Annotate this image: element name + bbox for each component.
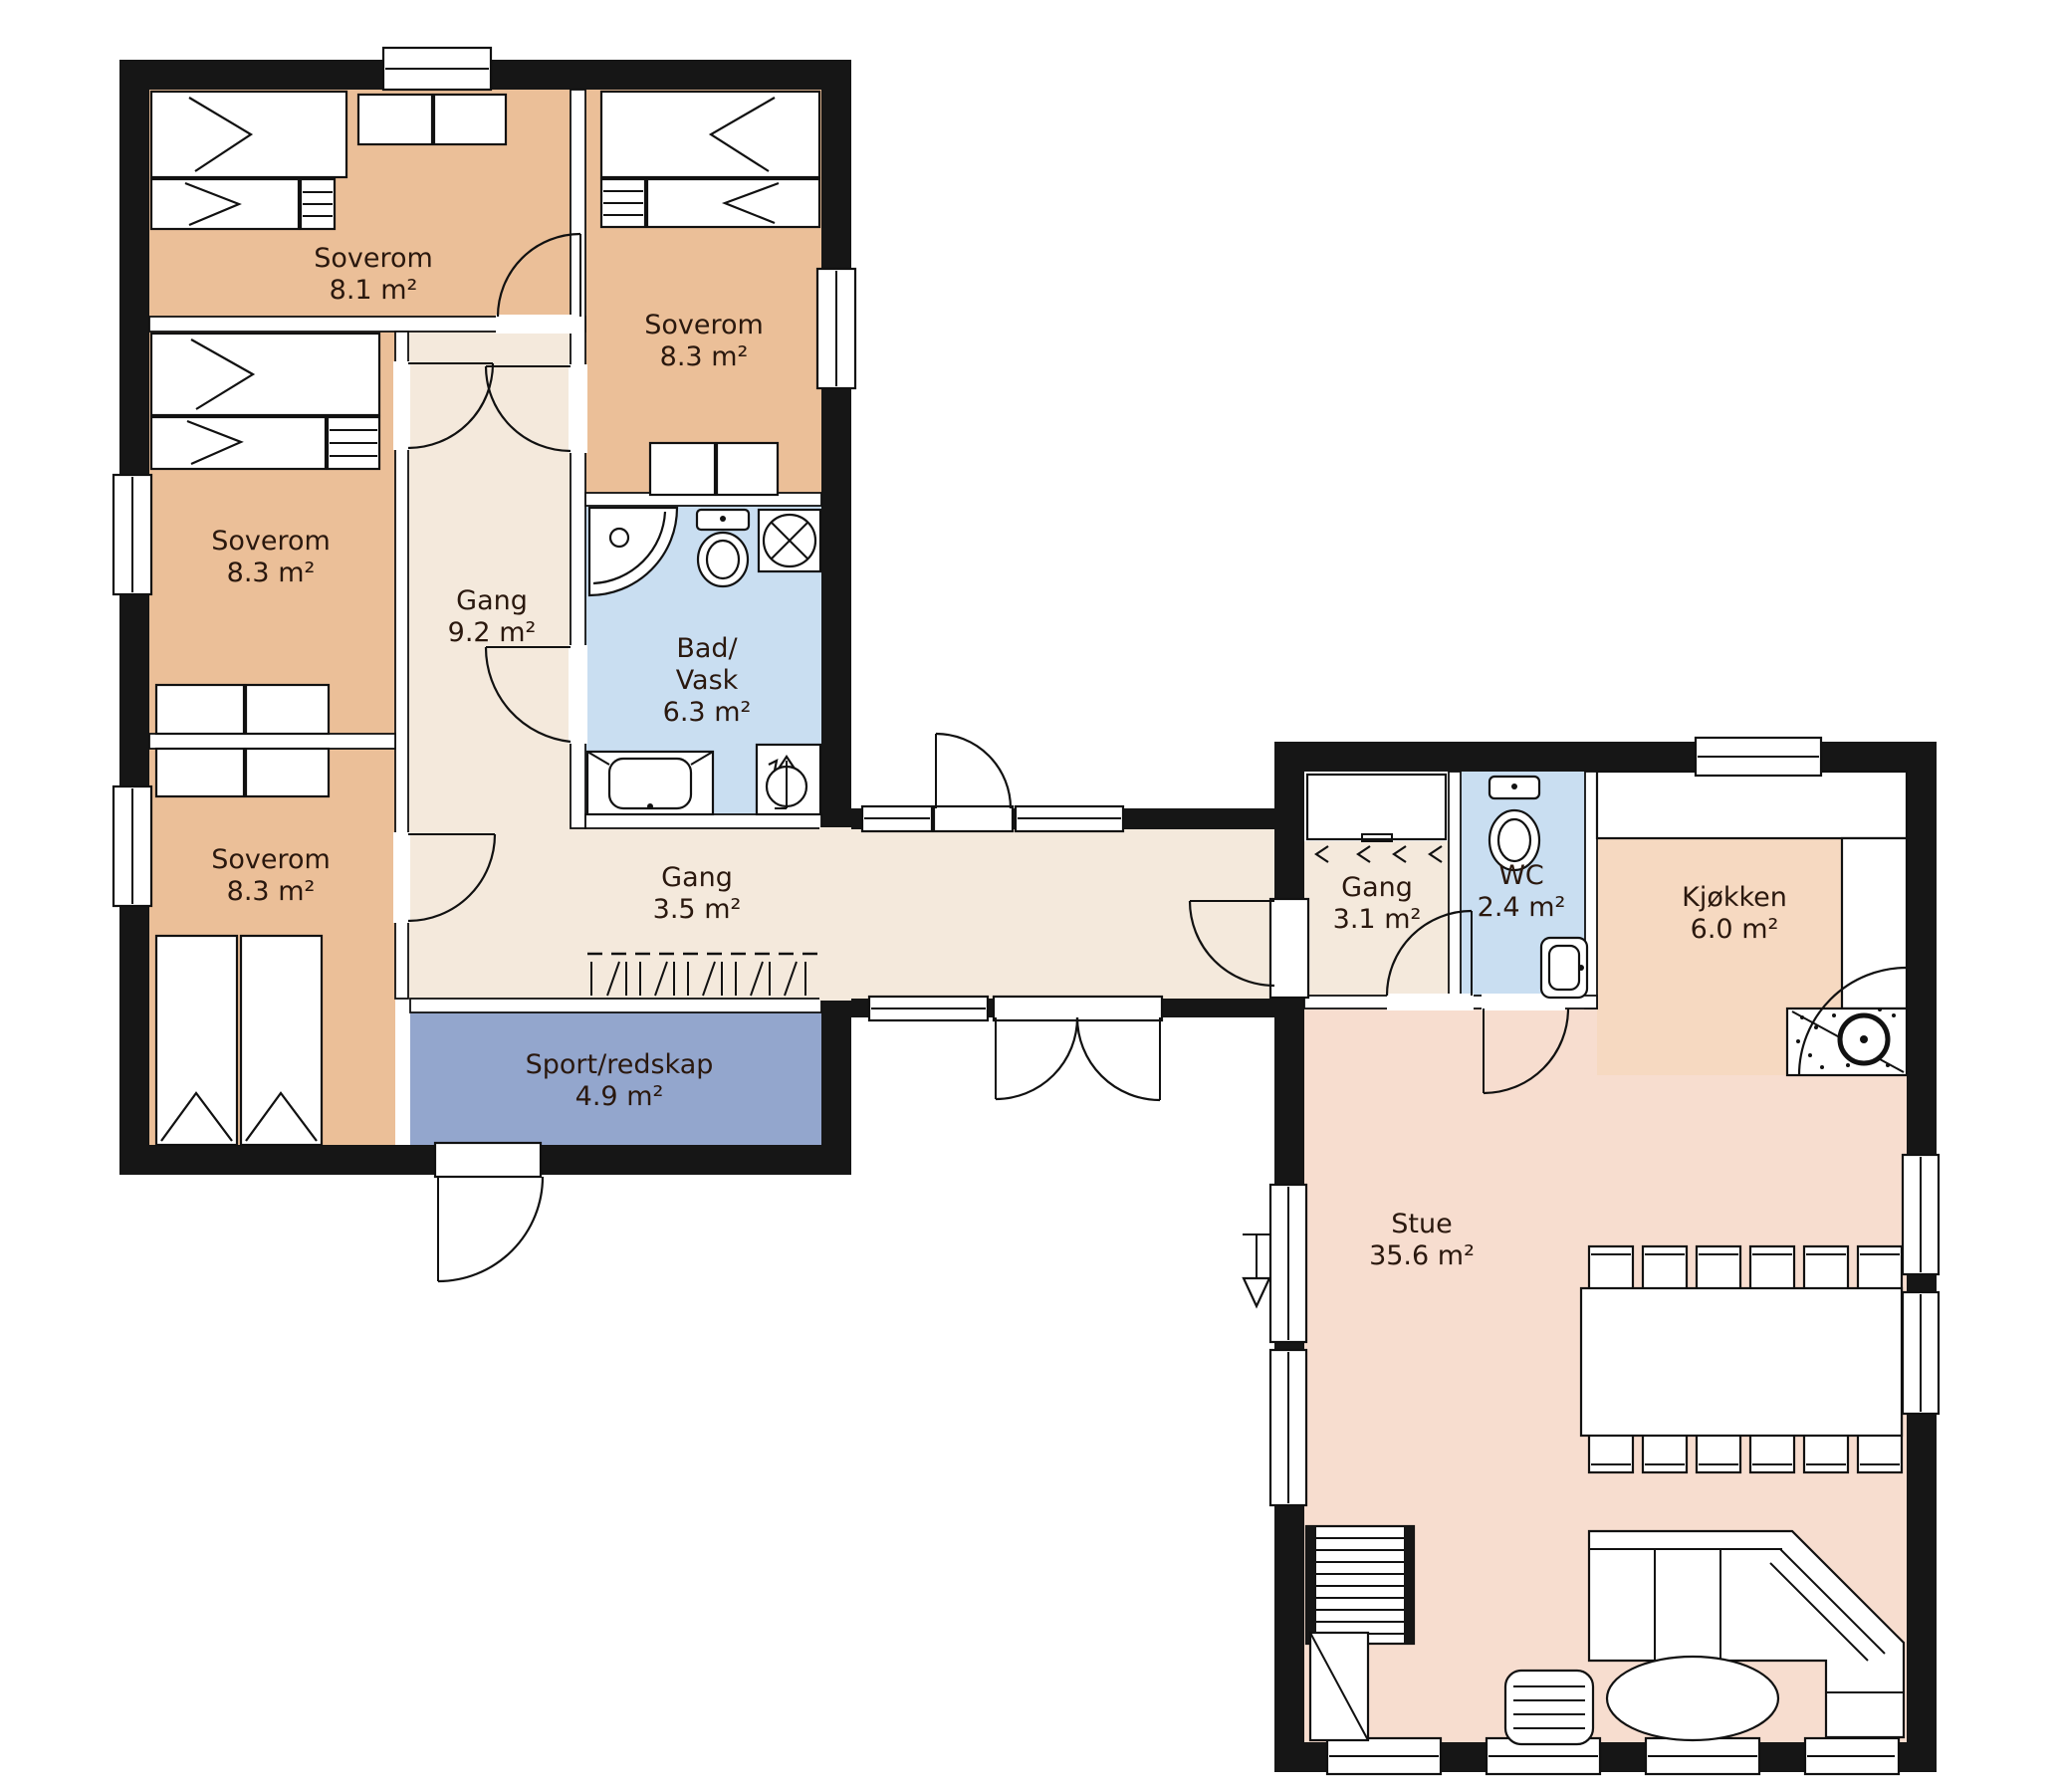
left-building: Soverom 8.1 m² Soverom 8.3 m² Soverom 8.…	[114, 48, 855, 1281]
toilet-icon	[697, 510, 749, 586]
room-label: Sport/redskap	[526, 1049, 714, 1080]
floor-plan-page: Soverom 8.1 m² Soverom 8.3 m² Soverom 8.…	[0, 0, 2061, 1792]
room-label: Vask	[676, 665, 739, 696]
window	[862, 806, 932, 831]
door-opening	[569, 364, 587, 453]
floor-plan-drawing: Soverom 8.1 m² Soverom 8.3 m² Soverom 8.…	[0, 0, 2061, 1792]
door-opening	[496, 315, 582, 334]
bunk-bed	[151, 92, 346, 229]
room-label: Stue	[1391, 1209, 1452, 1239]
window	[1646, 1738, 1759, 1774]
door-opening	[393, 361, 410, 450]
room-label: Soverom	[314, 243, 433, 274]
room-label: Soverom	[211, 844, 331, 875]
room-area: 6.3 m²	[663, 697, 752, 728]
room-floor-gang	[408, 332, 571, 999]
room-label: Kjøkken	[1682, 882, 1787, 913]
wardrobe	[156, 749, 329, 796]
window	[1696, 738, 1821, 776]
room-area: 3.1 m²	[1333, 904, 1422, 935]
bunk-bed	[601, 92, 819, 227]
room-area: 8.1 m²	[330, 275, 418, 306]
wardrobe	[156, 685, 329, 734]
armchair	[1505, 1671, 1593, 1744]
room-label: Soverom	[211, 526, 331, 557]
window	[1270, 1185, 1306, 1342]
room-label: Gang	[456, 585, 528, 616]
room-area: 2.4 m²	[1478, 892, 1566, 923]
coffee-table	[1607, 1657, 1778, 1740]
window	[1327, 1738, 1441, 1774]
window	[817, 269, 855, 388]
room-area: 4.9 m²	[575, 1081, 664, 1112]
single-bed	[241, 936, 322, 1145]
window	[114, 475, 151, 594]
room-area: 35.6 m²	[1369, 1240, 1475, 1271]
room-area: 3.5 m²	[653, 894, 742, 925]
door-opening	[1387, 994, 1474, 1010]
partition-wall	[1449, 772, 1461, 1008]
washing-machine-icon	[759, 510, 820, 571]
partition-wall	[410, 999, 821, 1012]
toilet-icon	[1489, 777, 1539, 870]
room-area: 8.3 m²	[660, 341, 749, 372]
door-opening	[569, 645, 587, 744]
room-label: Gang	[661, 862, 733, 893]
entry-wardrobe	[1307, 775, 1446, 841]
room-label: Soverom	[644, 310, 764, 340]
window	[1270, 1350, 1306, 1505]
room-area: 8.3 m²	[227, 558, 316, 588]
corridor-floor	[851, 829, 1274, 999]
room-label: Gang	[1341, 872, 1413, 903]
window	[114, 786, 151, 906]
wall-opening	[819, 827, 853, 1001]
single-bed	[156, 936, 237, 1145]
window	[869, 997, 988, 1020]
water-heater-icon	[757, 745, 820, 814]
window	[1016, 806, 1123, 831]
bunk-bed	[151, 334, 379, 469]
window	[1903, 1155, 1939, 1274]
wardrobe	[650, 443, 778, 495]
partition-wall	[585, 814, 821, 828]
window	[383, 48, 491, 90]
room-label: Bad/	[676, 633, 738, 664]
cabinet	[1310, 1633, 1368, 1740]
room-label: WC	[1498, 860, 1544, 891]
room-area: 9.2 m²	[448, 617, 537, 648]
wardrobe	[358, 95, 506, 144]
room-area: 8.3 m²	[227, 876, 316, 907]
door-opening	[393, 832, 410, 923]
dining-table	[1581, 1288, 1902, 1436]
hand-basin-icon	[1541, 938, 1587, 998]
window	[1903, 1292, 1939, 1414]
vanity-sink-icon	[587, 752, 713, 814]
room-area: 6.0 m²	[1691, 914, 1779, 945]
stairs	[1306, 1526, 1414, 1644]
room-floor-stue	[1304, 1008, 1597, 1075]
partition-wall	[149, 734, 395, 749]
right-building: Gang 3.1 m² WC 2.4 m² Kjøkken 6.0 m² Stu…	[1190, 738, 1939, 1774]
window	[1805, 1738, 1899, 1774]
